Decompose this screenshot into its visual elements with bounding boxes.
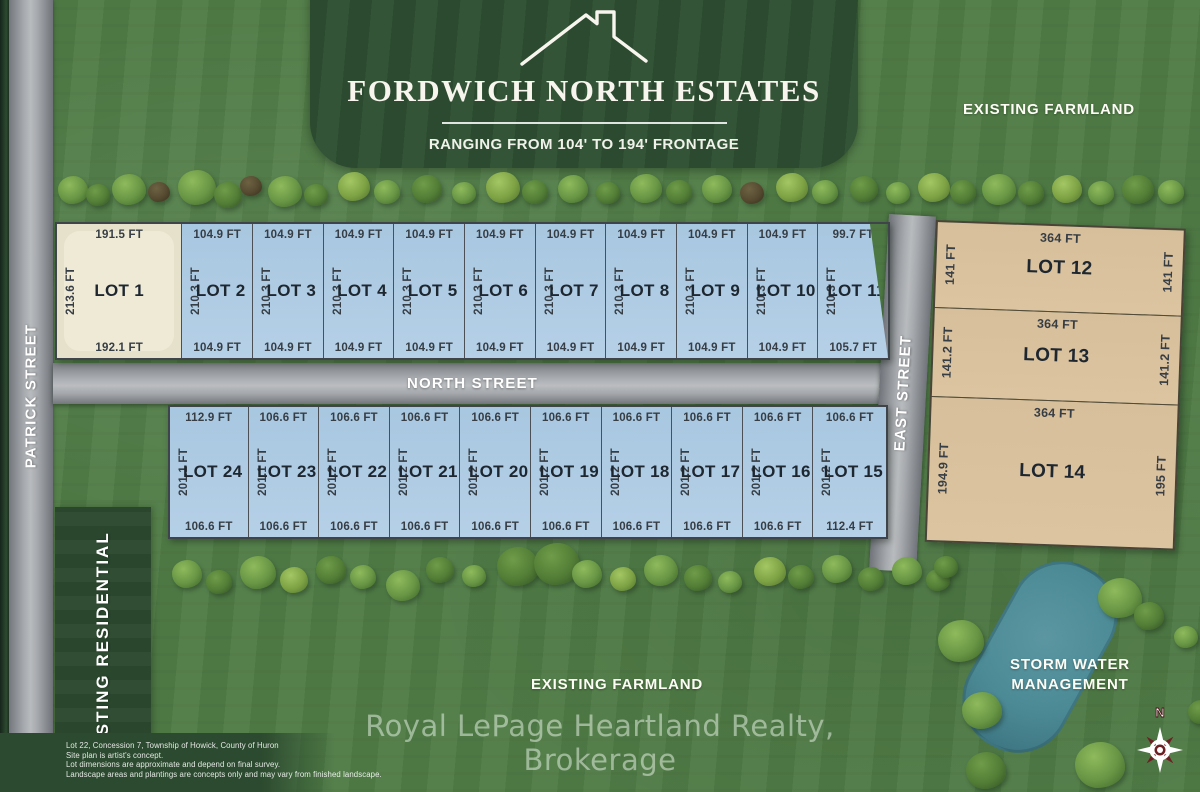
lot-label: LOT 24 [183, 462, 242, 482]
existing-farmland-top-label: EXISTING FARMLAND [963, 101, 1135, 118]
lot-frontage-top: 112.9 FT [170, 412, 248, 424]
lot-frontage-bottom: 104.9 FT [536, 342, 606, 354]
lot-label: LOT 2 [196, 281, 246, 301]
lot-frontage-bottom: 104.9 FT [606, 342, 676, 354]
lot-lot-6: 104.9 FT104.9 FT210.3 FTLOT 6 [464, 224, 535, 358]
lot-label: LOT 6 [478, 281, 528, 301]
lot-frontage-bottom: 104.9 FT [465, 342, 535, 354]
lot-label: LOT 19 [540, 462, 599, 482]
lot-frontage-bottom: 106.6 FT [460, 521, 530, 533]
lot-lot-4: 104.9 FT104.9 FT210.3 FTLOT 4 [323, 224, 394, 358]
lot-frontage-top: 106.6 FT [390, 412, 460, 424]
lot-label: LOT 23 [257, 462, 316, 482]
tree-icon [1158, 180, 1184, 204]
lot-frontage-top: 106.6 FT [531, 412, 601, 424]
lot-depth-right: 195 FT [1153, 456, 1168, 497]
tree-icon [982, 174, 1016, 205]
house-roofline-icon [514, 9, 654, 67]
tree-icon [962, 692, 1002, 729]
lot-lot-5: 104.9 FT104.9 FT210.3 FTLOT 5 [393, 224, 464, 358]
title-divider [442, 122, 727, 124]
lot-frontage-bottom: 106.6 FT [170, 521, 248, 533]
disclaimer-line: Site plan is artist's concept. [66, 751, 382, 761]
tree-icon [304, 184, 328, 206]
lot-lot-16: 106.6 FT106.6 FT201.2 FTLOT 16 [742, 407, 813, 537]
lot-frontage-top: 104.9 FT [253, 229, 323, 241]
east-street-label: EAST STREET [891, 334, 914, 451]
tree-icon [630, 174, 662, 203]
lot-lot-17: 106.6 FT106.6 FT201.2 FTLOT 17 [671, 407, 742, 537]
lot-lot-18: 106.6 FT106.6 FT201.2 FTLOT 18 [601, 407, 672, 537]
tree-icon [374, 180, 400, 204]
lot-label: LOT 21 [398, 462, 457, 482]
lot-frontage-bottom: 104.9 FT [253, 342, 323, 354]
tree-icon [426, 557, 454, 583]
tree-icon [522, 180, 548, 204]
north-street: NORTH STREET [53, 363, 892, 404]
disclaimer-line: Lot dimensions are approximate and depen… [66, 760, 382, 770]
lot-frontage-top: 104.9 FT [606, 229, 676, 241]
lot-frontage-bottom: 106.6 FT [531, 521, 601, 533]
tree-icon [148, 182, 170, 202]
lot-lot-7: 104.9 FT104.9 FT210.3 FTLOT 7 [535, 224, 606, 358]
right-lot-column: 364 FT141 FT141 FTLOT 12364 FT141.2 FT14… [925, 220, 1186, 551]
tree-icon [497, 547, 539, 586]
lot-label: LOT 16 [751, 462, 810, 482]
lot-lot-19: 106.6 FT106.6 FT201.2 FTLOT 19 [530, 407, 601, 537]
tree-icon [934, 556, 958, 578]
lot-lot-13: 364 FT141.2 FT141.2 FTLOT 13 [932, 307, 1181, 404]
tree-icon [1174, 626, 1198, 648]
lot-label: LOT 8 [620, 281, 670, 301]
tree-icon [214, 182, 242, 208]
lot-depth-left: 141 FT [943, 244, 958, 285]
bottom-lot-row: 112.9 FT106.6 FT201.1 FTLOT 24106.6 FT10… [168, 405, 888, 539]
tree-icon [938, 620, 984, 662]
tree-icon [702, 175, 732, 203]
lot-frontage-top: 106.6 FT [460, 412, 530, 424]
lot-frontage-top: 104.9 FT [324, 229, 394, 241]
lot-frontage-top: 106.6 FT [319, 412, 389, 424]
development-title: FORDWICH NORTH ESTATES [347, 73, 820, 109]
lot-frontage-top: 104.9 FT [536, 229, 606, 241]
lot-label: LOT 20 [469, 462, 528, 482]
lot-frontage-top: 104.9 FT [394, 229, 464, 241]
left-edge-strip [0, 0, 9, 792]
lot-frontage-bottom: 104.9 FT [748, 342, 818, 354]
disclaimer-line: Landscape areas and plantings are concep… [66, 770, 382, 780]
lot-frontage-bottom: 104.9 FT [677, 342, 747, 354]
lot-lot-8: 104.9 FT104.9 FT210.3 FTLOT 8 [605, 224, 676, 358]
lot-lot-14: 364 FT194.9 FT195 FTLOT 14 [927, 396, 1178, 549]
lot-label: LOT 13 [1023, 344, 1090, 368]
brokerage-watermark: Royal LePage Heartland Realty, Brokerage [300, 709, 900, 777]
tree-icon [240, 176, 262, 196]
lot-frontage-top: 104.9 FT [748, 229, 818, 241]
compass-rose-icon: N [1128, 702, 1192, 780]
north-street-label: NORTH STREET [407, 375, 538, 392]
tree-icon [452, 182, 476, 204]
tree-icon [684, 565, 712, 591]
lot-frontage-bottom: 106.6 FT [602, 521, 672, 533]
tree-icon [58, 176, 88, 204]
tree-icon [338, 172, 370, 201]
lot-frontage-top: 364 FT [931, 402, 1177, 425]
tree-icon [596, 182, 620, 204]
tree-icon [350, 565, 376, 589]
tree-icon [412, 175, 442, 203]
lot-lot-15: 106.6 FT112.4 FT201.2 FTLOT 15 [812, 407, 886, 537]
lot-label: LOT 9 [690, 281, 740, 301]
tree-icon [666, 180, 692, 204]
tree-icon [1134, 602, 1164, 630]
lot-depth-right: 141.2 FT [1157, 334, 1173, 386]
tree-icon [892, 557, 922, 585]
lot-depth-left: 141.2 FT [939, 326, 955, 378]
lot-frontage-bottom: 106.6 FT [672, 521, 742, 533]
tree-icon [822, 555, 852, 583]
tree-icon [1088, 181, 1114, 205]
lot-label: LOT 12 [1026, 257, 1093, 281]
tree-icon [572, 560, 602, 588]
storm-water-line2: MANAGEMENT [1000, 675, 1140, 695]
tree-icon [918, 173, 950, 202]
compass-north-letter: N [1155, 705, 1164, 720]
lot-lot-11: 99.7 FT105.7 FT210.3 FTLOT 11 [817, 224, 888, 358]
lot-depth-left: 194.9 FT [935, 443, 951, 495]
lot-lot-21: 106.6 FT106.6 FT201.2 FTLOT 21 [389, 407, 460, 537]
lot-lot-22: 106.6 FT106.6 FT201.2 FTLOT 22 [318, 407, 389, 537]
tree-icon [754, 557, 786, 586]
lot-lot-9: 104.9 FT104.9 FT210.3 FTLOT 9 [676, 224, 747, 358]
lot-label: LOT 7 [549, 281, 599, 301]
lot-frontage-top: 104.9 FT [182, 229, 252, 241]
lot-frontage-bottom: 106.6 FT [249, 521, 319, 533]
top-lot-row: 191.5 FT192.1 FT213.6 FTLOT 1104.9 FT104… [55, 222, 890, 360]
lot-lot-2: 104.9 FT104.9 FT210.3 FTLOT 2 [181, 224, 252, 358]
tree-icon [858, 567, 884, 591]
tree-icon [462, 565, 486, 587]
tree-icon [812, 180, 838, 204]
tree-icon [950, 180, 976, 204]
lot-frontage-top: 106.6 FT [672, 412, 742, 424]
tree-icon [644, 555, 678, 586]
tree-icon [240, 556, 276, 589]
tree-icon [1075, 742, 1125, 788]
tree-icon [280, 567, 308, 593]
storm-water-label: STORM WATER MANAGEMENT [1000, 655, 1140, 695]
tree-icon [776, 173, 808, 202]
lot-frontage-bottom: 105.7 FT [818, 342, 888, 354]
tree-icon [386, 570, 420, 601]
lot-frontage-top: 106.6 FT [743, 412, 813, 424]
storm-water-line1: STORM WATER [1000, 655, 1140, 675]
tree-icon [610, 567, 636, 591]
lot-label: LOT 4 [337, 281, 387, 301]
lot-depth-right: 141 FT [1161, 252, 1176, 293]
lot-frontage-top: 106.6 FT [602, 412, 672, 424]
tree-icon [558, 175, 588, 203]
tree-icon [206, 570, 232, 594]
lot-frontage-top: 104.9 FT [465, 229, 535, 241]
lot-frontage-bottom: 104.9 FT [394, 342, 464, 354]
lot-frontage-bottom: 106.6 FT [390, 521, 460, 533]
lot-lot-10: 104.9 FT104.9 FT210.3 FTLOT 10 [747, 224, 818, 358]
lot-label: LOT 10 [756, 281, 815, 301]
header-panel: FORDWICH NORTH ESTATES RANGING FROM 104'… [310, 0, 858, 168]
lot-label: LOT 17 [681, 462, 740, 482]
lot-frontage-bottom: 192.1 FT [57, 342, 181, 354]
lot-label: LOT 18 [610, 462, 669, 482]
lot-frontage-top: 364 FT [937, 227, 1183, 250]
lot-lot-23: 106.6 FT106.6 FT201.1 FTLOT 23 [248, 407, 319, 537]
lot-frontage-top: 106.6 FT [249, 412, 319, 424]
patrick-street: PATRICK STREET [8, 0, 53, 792]
disclaimer-text: Lot 22, Concession 7, Township of Howick… [66, 741, 382, 779]
frontage-subtitle: RANGING FROM 104' TO 194' FRONTAGE [429, 136, 739, 153]
lot-label: LOT 15 [824, 462, 883, 482]
lot-label: LOT 3 [267, 281, 317, 301]
lot-label: LOT 5 [408, 281, 458, 301]
lot-label: LOT 14 [1019, 460, 1086, 484]
tree-icon [788, 565, 814, 589]
site-plan-canvas: PATRICK STREET NORTH STREET EAST STREET … [0, 0, 1200, 792]
lot-lot-12: 364 FT141 FT141 FTLOT 12 [935, 222, 1184, 315]
tree-icon [966, 752, 1006, 789]
tree-icon [1122, 175, 1154, 204]
lot-frontage-bottom: 104.9 FT [324, 342, 394, 354]
tree-icon [112, 174, 146, 205]
lot-frontage-bottom: 106.6 FT [319, 521, 389, 533]
tree-icon [886, 182, 910, 204]
lot-frontage-bottom: 106.6 FT [743, 521, 813, 533]
tree-icon [1052, 175, 1082, 203]
tree-icon [740, 182, 764, 204]
tree-icon [86, 184, 110, 206]
tree-icon [316, 556, 346, 584]
lot-lot-24: 112.9 FT106.6 FT201.1 FTLOT 24 [170, 407, 248, 537]
lot-label: LOT 11 [827, 281, 886, 301]
lot-frontage-top: 99.7 FT [818, 229, 888, 241]
lot-label: LOT 1 [94, 281, 144, 301]
lot-frontage-top: 104.9 FT [677, 229, 747, 241]
tree-icon [178, 170, 216, 205]
lot-lot-20: 106.6 FT106.6 FT201.2 FTLOT 20 [459, 407, 530, 537]
tree-icon [486, 172, 520, 203]
lot-depth-side: 213.6 FT [65, 267, 77, 315]
patrick-street-label: PATRICK STREET [22, 324, 39, 469]
lot-label: LOT 22 [328, 462, 387, 482]
lot-frontage-bottom: 112.4 FT [813, 521, 886, 533]
tree-icon [172, 560, 202, 588]
lot-frontage-top: 191.5 FT [57, 229, 181, 241]
tree-icon [850, 176, 878, 202]
lot-frontage-bottom: 104.9 FT [182, 342, 252, 354]
existing-farmland-bottom-label: EXISTING FARMLAND [467, 676, 767, 693]
lot-lot-1: 191.5 FT192.1 FT213.6 FTLOT 1 [57, 224, 181, 358]
disclaimer-line: Lot 22, Concession 7, Township of Howick… [66, 741, 382, 751]
tree-icon [1018, 181, 1044, 205]
lot-lot-3: 104.9 FT104.9 FT210.3 FTLOT 3 [252, 224, 323, 358]
lot-frontage-top: 364 FT [934, 313, 1180, 336]
lot-frontage-top: 106.6 FT [813, 412, 886, 424]
tree-icon [268, 176, 302, 207]
tree-icon [718, 571, 742, 593]
